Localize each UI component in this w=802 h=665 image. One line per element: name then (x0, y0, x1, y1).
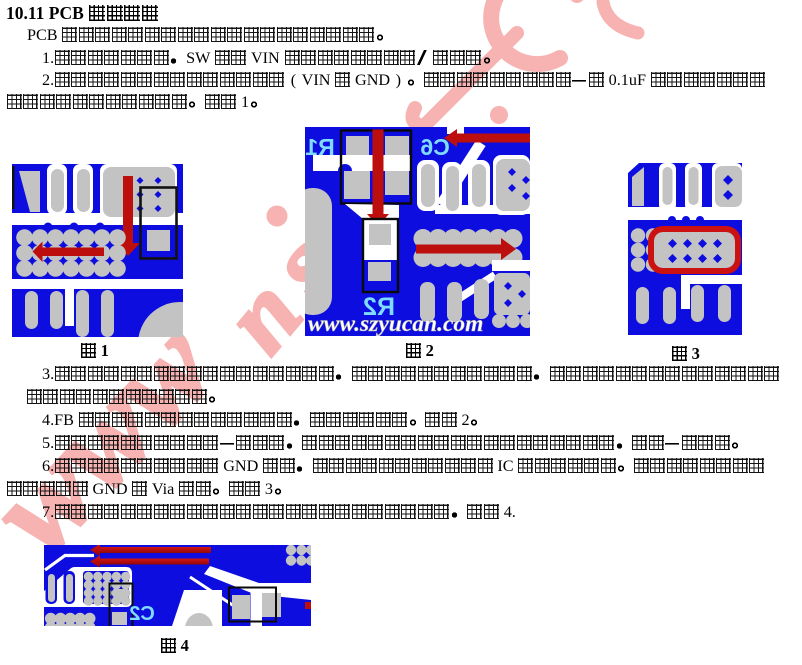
svg-text:www.szyucan.com: www.szyucan.com (308, 311, 483, 336)
svg-text:C2: C2 (129, 603, 155, 625)
svg-text:R1: R1 (305, 134, 335, 160)
